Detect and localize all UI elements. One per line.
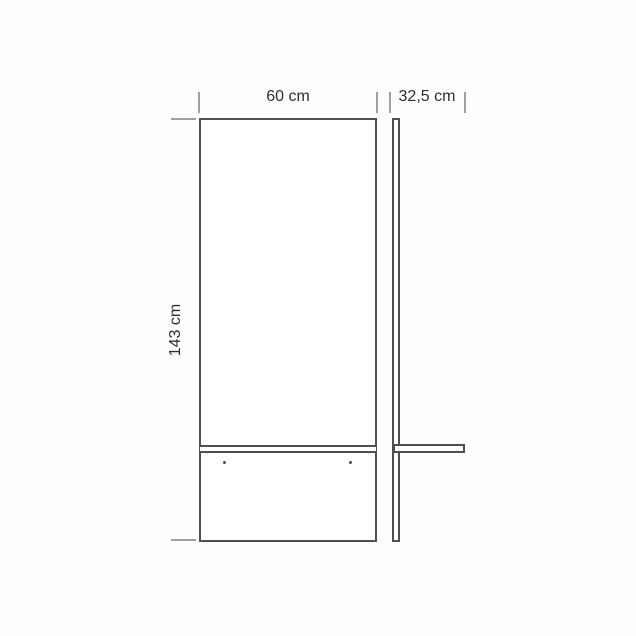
screw-hole-right (349, 461, 352, 464)
side-view-shelf (393, 444, 465, 453)
front-view-panel (199, 118, 377, 542)
height-dimension-label: 143 cm (167, 284, 185, 376)
height-dimension-tick-top (171, 118, 196, 120)
front-view-shelf-edge (200, 445, 376, 453)
side-view-panel (392, 118, 400, 542)
screw-hole-left (223, 461, 226, 464)
width-dimension-label: 60 cm (199, 88, 377, 106)
depth-dimension-label: 32,5 cm (388, 88, 466, 106)
height-dimension-tick-bottom (171, 539, 196, 541)
dimension-drawing: 60 cm 32,5 cm 143 cm (0, 0, 636, 636)
